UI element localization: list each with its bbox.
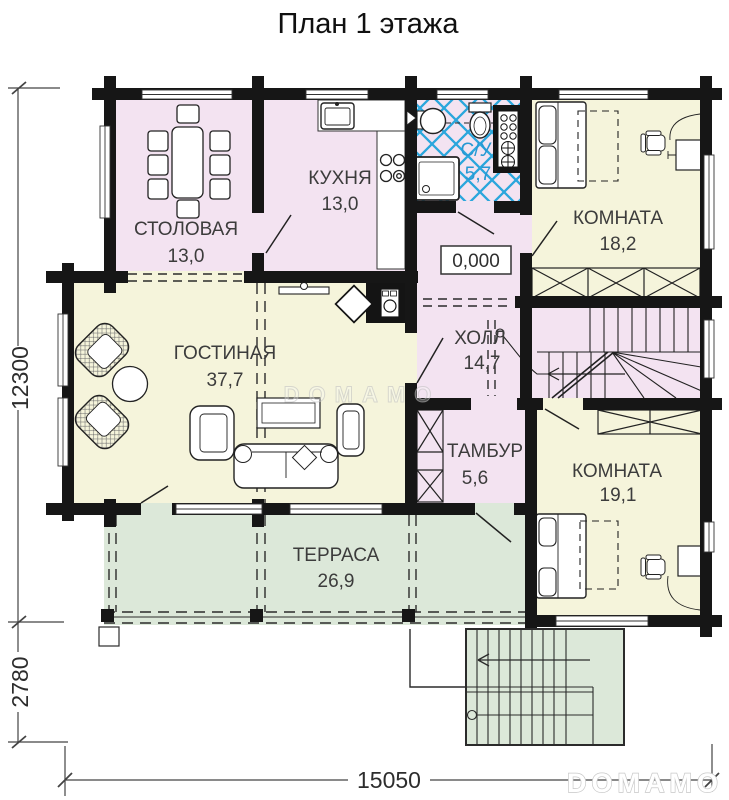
- label-bedroom1: КОМНАТА: [573, 208, 663, 229]
- label-bathroom: С/У: [460, 140, 492, 161]
- area-dining: 13,0: [168, 246, 205, 267]
- area-hall: 14,7: [464, 353, 501, 374]
- floor-plan-page: СТОЛОВАЯ 13,0 КУХНЯ 13,0 С/У 5,7 КОМНАТА…: [0, 0, 729, 800]
- label-terrace: ТЕРРАСА: [293, 545, 380, 566]
- dim-bottom: 15050: [357, 767, 421, 793]
- label-vestibule: ТАМБУР: [447, 441, 523, 462]
- area-vestibule: 5,6: [462, 468, 488, 489]
- armchair-4: [337, 404, 364, 456]
- porch-post: [99, 627, 119, 646]
- floor-plan-drawing: СТОЛОВАЯ 13,0 КУХНЯ 13,0 С/У 5,7 КОМНАТА…: [0, 0, 729, 800]
- sofa: [234, 444, 338, 488]
- desk-chair: [641, 131, 665, 155]
- area-terrace: 26,9: [318, 571, 355, 592]
- label-living: ГОСТИНАЯ: [174, 343, 276, 364]
- toilet-tank: [469, 103, 491, 112]
- desk: [676, 140, 702, 170]
- dim-left-porch: 2780: [7, 656, 33, 707]
- elevation-label: 0,000: [452, 251, 500, 272]
- shower-tray: [414, 157, 459, 200]
- label-hall: ХОЛЛ: [454, 328, 506, 349]
- toilet-bowl: [470, 112, 490, 138]
- watermark-corner: DOMAMO: [567, 768, 723, 798]
- label-kitchen: КУХНЯ: [308, 168, 371, 189]
- desk-chair: [641, 555, 665, 579]
- area-bathroom: 5,7: [465, 164, 491, 185]
- area-kitchen: 13,0: [322, 194, 359, 215]
- label-dining: СТОЛОВАЯ: [134, 219, 238, 240]
- dim-left-main: 12300: [7, 346, 33, 410]
- area-bedroom1: 18,2: [600, 234, 637, 255]
- label-bedroom2: КОМНАТА: [572, 461, 662, 482]
- area-living: 37,7: [207, 370, 244, 391]
- watermark-center: DOMAMO: [284, 382, 441, 407]
- bath-sink: [421, 109, 446, 134]
- page-title: План 1 этажа: [278, 8, 460, 40]
- round-table: [113, 367, 148, 402]
- area-bedroom2: 19,1: [600, 485, 637, 506]
- porch-stairs: [410, 629, 624, 745]
